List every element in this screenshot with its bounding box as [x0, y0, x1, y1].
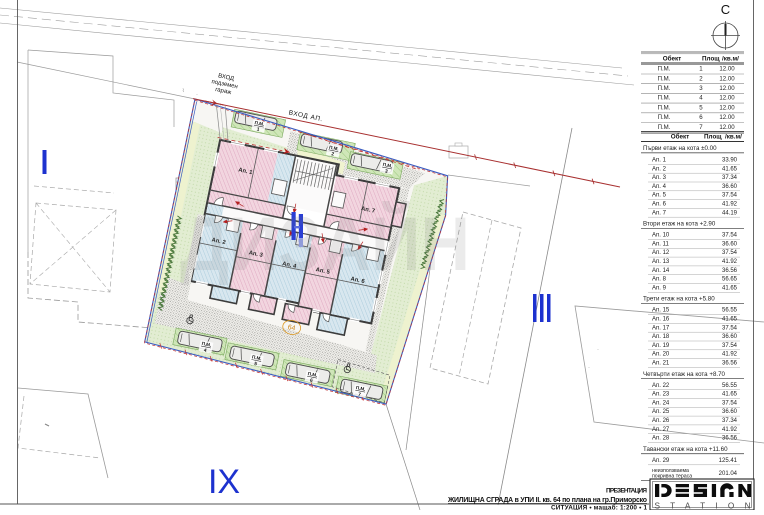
svg-text:/кв.м/: /кв.м/ [725, 134, 742, 141]
svg-text:Ап. 8: Ап. 8 [652, 277, 667, 283]
svg-text:41.92: 41.92 [722, 427, 738, 433]
svg-text:41.65: 41.65 [722, 166, 738, 172]
svg-text:36.56: 36.56 [722, 361, 738, 367]
svg-text:37.54: 37.54 [722, 193, 738, 199]
svg-text:П.М.: П.М. [658, 95, 671, 102]
svg-text:Ап. 17: Ап. 17 [652, 325, 670, 331]
svg-text:П.М.: П.М. [658, 75, 671, 82]
svg-text:Ап. 15: Ап. 15 [652, 308, 670, 314]
svg-text:12.00: 12.00 [719, 114, 735, 121]
svg-text:П.М.: П.М. [658, 114, 671, 121]
svg-text:Ап. 22: Ап. 22 [652, 383, 670, 389]
svg-text:Ап. 20: Ап. 20 [652, 352, 670, 358]
svg-text:Ап. 19: Ап. 19 [652, 343, 670, 349]
svg-text:Ап. 24: Ап. 24 [652, 400, 670, 406]
svg-text:37.54: 37.54 [722, 400, 738, 406]
svg-text:37.34: 37.34 [722, 418, 738, 424]
svg-text:Ап. 10: Ап. 10 [652, 233, 670, 239]
svg-text:Ап. 25: Ап. 25 [652, 409, 670, 415]
svg-text:Ап. 11: Ап. 11 [652, 241, 669, 247]
svg-text:Ап. 21: Ап. 21 [652, 361, 670, 367]
svg-text:Ап. 13: Ап. 13 [652, 259, 670, 265]
svg-text:44.19: 44.19 [722, 210, 738, 216]
svg-text:П.М.: П.М. [658, 104, 671, 111]
svg-text:Тавански етаж на кота +11.60: Тавански етаж на кота +11.60 [643, 446, 728, 453]
svg-text:12.00: 12.00 [719, 75, 735, 82]
svg-text:12.00: 12.00 [719, 85, 735, 92]
svg-text:Площ: Площ [702, 56, 720, 63]
svg-text:36.60: 36.60 [722, 334, 738, 340]
svg-text:ЖИЛИЩНА СГРАДА в УПИ II. кв. 6: ЖИЛИЩНА СГРАДА в УПИ II. кв. 64 по плана… [447, 497, 647, 504]
svg-text:Ап. 5: Ап. 5 [652, 193, 667, 199]
svg-text:12.00: 12.00 [719, 66, 735, 73]
svg-text:36.60: 36.60 [722, 409, 738, 415]
svg-text:56.55: 56.55 [722, 308, 738, 314]
svg-text:Ап. 16: Ап. 16 [652, 317, 670, 323]
svg-text:Ап. 7: Ап. 7 [652, 210, 667, 216]
svg-text:37.34: 37.34 [722, 175, 738, 181]
svg-text:Обект: Обект [671, 133, 690, 141]
svg-text:125.41: 125.41 [719, 458, 738, 464]
svg-text:41.92: 41.92 [722, 202, 738, 208]
svg-text:Първи етаж на кота ±0.00: Първи етаж на кота ±0.00 [643, 145, 717, 152]
svg-text:Ап. 9: Ап. 9 [652, 285, 667, 291]
svg-text:·: · [588, 365, 590, 371]
svg-text:Площ: Площ [704, 134, 722, 141]
svg-text:201.04: 201.04 [719, 471, 738, 477]
svg-text:ПРЕЗЕНТАЦИЯ: ПРЕЗЕНТАЦИЯ [606, 488, 647, 495]
svg-text:Ап. 18: Ап. 18 [652, 334, 670, 340]
svg-text:·: · [196, 92, 198, 98]
svg-text:СИТУАЦИЯ • мащаб: 1:200 • 1: СИТУАЦИЯ • мащаб: 1:200 • 1 [551, 504, 647, 511]
svg-text:Четвърти етаж на кота +8.70: Четвърти етаж на кота +8.70 [643, 371, 726, 378]
svg-text:Ап. 26: Ап. 26 [652, 418, 670, 424]
svg-text:Обект: Обект [663, 55, 682, 63]
svg-text:37.54: 37.54 [722, 250, 738, 256]
svg-text:56.55: 56.55 [722, 383, 738, 389]
svg-text:Втори етаж на кота +2.90: Втори етаж на кота +2.90 [643, 221, 716, 228]
svg-text:П.М.: П.М. [658, 85, 671, 92]
svg-text:Ап. 27: Ап. 27 [652, 427, 670, 433]
svg-text:36.60: 36.60 [722, 241, 738, 247]
svg-text:12.00: 12.00 [719, 95, 735, 102]
svg-text:·: · [478, 284, 480, 290]
svg-text:IX: IX [208, 463, 240, 501]
svg-text:Ап. 4: Ап. 4 [652, 184, 667, 190]
svg-text:C: C [721, 2, 730, 17]
svg-text:37.54: 37.54 [722, 325, 738, 331]
svg-text:Ап. 14: Ап. 14 [652, 268, 670, 274]
svg-text:12.00: 12.00 [719, 124, 735, 131]
svg-text:Ап. 28: Ап. 28 [652, 436, 670, 442]
svg-text:Ап. 29: Ап. 29 [652, 458, 670, 464]
svg-text:36.56: 36.56 [722, 436, 738, 442]
svg-text:36.56: 36.56 [722, 268, 738, 274]
svg-text:37.54: 37.54 [722, 233, 738, 239]
svg-text:36.60: 36.60 [722, 184, 738, 190]
svg-text:⌇: ⌇ [182, 88, 184, 94]
svg-text:37.54: 37.54 [722, 343, 738, 349]
svg-text:Ап. 12: Ап. 12 [652, 250, 670, 256]
svg-text:Трети етаж на кота +5.80: Трети етаж на кота +5.80 [643, 296, 715, 303]
svg-text:Ап. 23: Ап. 23 [652, 392, 670, 398]
svg-text:33.90: 33.90 [722, 158, 738, 164]
svg-text:П.М.: П.М. [658, 124, 671, 131]
svg-text:41.65: 41.65 [722, 285, 738, 291]
svg-text:Ап. 1: Ап. 1 [652, 158, 667, 164]
svg-text:41.65: 41.65 [722, 392, 738, 398]
svg-text:41.92: 41.92 [722, 259, 738, 265]
svg-text:Ап. 3: Ап. 3 [652, 175, 667, 181]
svg-text:Ап. 2: Ап. 2 [652, 166, 667, 172]
svg-text:/кв.м/: /кв.м/ [722, 56, 739, 63]
svg-text:41.65: 41.65 [722, 317, 738, 323]
svg-text:12.00: 12.00 [719, 104, 735, 111]
svg-text:ДИЗАЙН: ДИЗАЙН [180, 201, 470, 287]
svg-text:Ап. 6: Ап. 6 [652, 202, 667, 208]
svg-text:П.М.: П.М. [658, 66, 671, 73]
svg-text:56.65: 56.65 [722, 277, 738, 283]
svg-text:·: · [597, 347, 599, 353]
svg-text:41.92: 41.92 [722, 352, 738, 358]
